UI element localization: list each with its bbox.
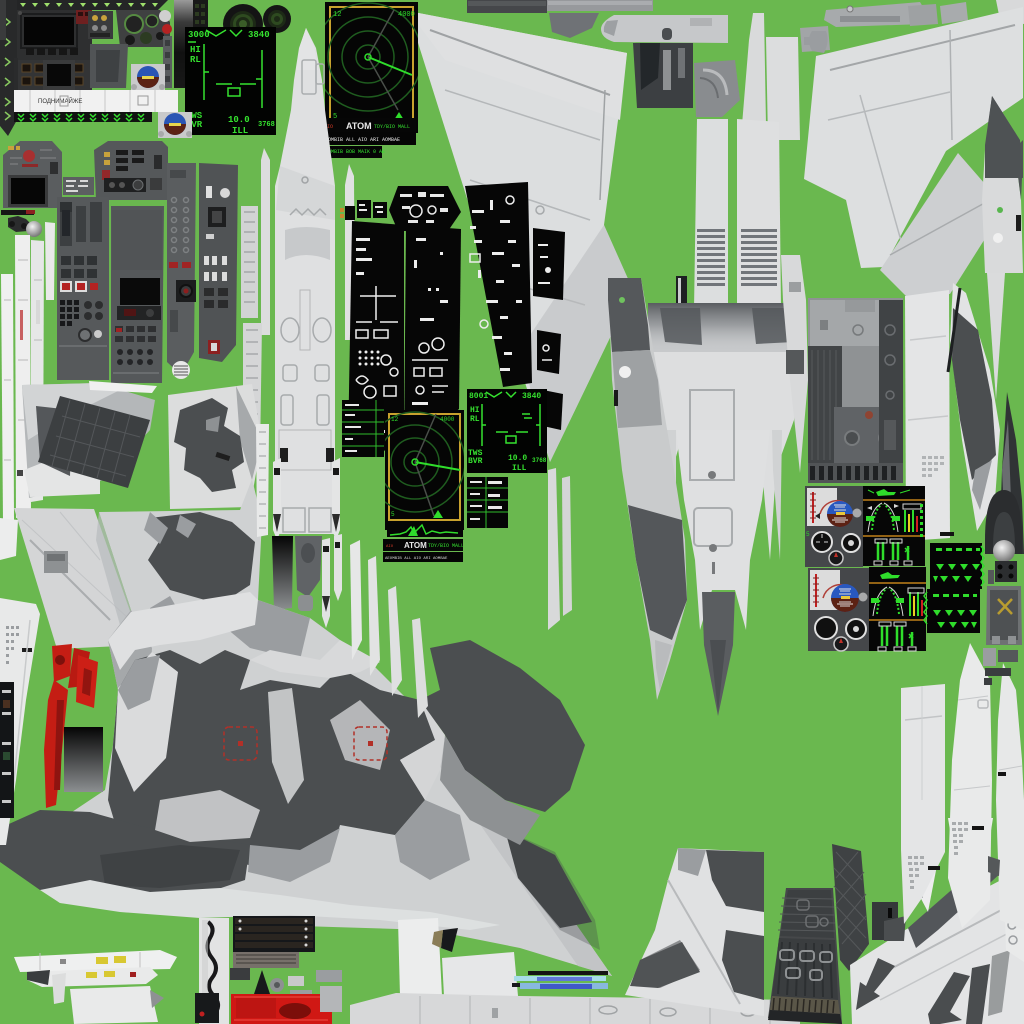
svg-text:ILL: ILL: [232, 126, 248, 136]
svg-text:AIO: AIO: [386, 545, 394, 549]
svg-text:RL: RL: [470, 415, 480, 424]
svg-text:5: 5: [806, 531, 810, 538]
svg-text:ATOM: ATOM: [404, 541, 427, 550]
svg-text:3768: 3768: [258, 121, 275, 129]
svg-text:AEOMBIB ALL AIO ARI AOMBAE: AEOMBIB ALL AIO ARI AOMBAE: [322, 137, 400, 143]
svg-text:AEOMBIB ALL AIO ARI AOMBAE: AEOMBIB ALL AIO ARI AOMBAE: [385, 557, 448, 561]
svg-text:4000: 4000: [440, 416, 455, 423]
svg-text:3840: 3840: [248, 30, 270, 40]
svg-text:8001: 8001: [469, 392, 488, 401]
svg-text:10.0: 10.0: [508, 454, 527, 463]
svg-text:12: 12: [391, 416, 399, 423]
svg-text:BVR: BVR: [468, 457, 483, 466]
svg-text:5: 5: [391, 511, 395, 518]
svg-text:4000: 4000: [398, 11, 415, 19]
svg-text:3768: 3768: [532, 457, 547, 464]
svg-text:AROMBIB BOB MAIK 0 AE: AROMBIB BOB MAIK 0 AE: [322, 149, 385, 155]
svg-text:TDY/BIO MALL: TDY/BIO MALL: [428, 543, 464, 549]
svg-text:RL: RL: [190, 55, 201, 65]
svg-text:12: 12: [333, 11, 341, 19]
svg-text:TDY/BIO MALL: TDY/BIO MALL: [374, 124, 410, 130]
svg-text:ATOM: ATOM: [346, 121, 372, 131]
svg-text:3000: 3000: [188, 30, 210, 40]
svg-text:ILL: ILL: [512, 464, 527, 473]
svg-text:10.0: 10.0: [228, 115, 250, 125]
svg-text:3840: 3840: [522, 392, 541, 401]
svg-text:HI: HI: [190, 45, 201, 55]
svg-text:HI: HI: [470, 406, 480, 415]
